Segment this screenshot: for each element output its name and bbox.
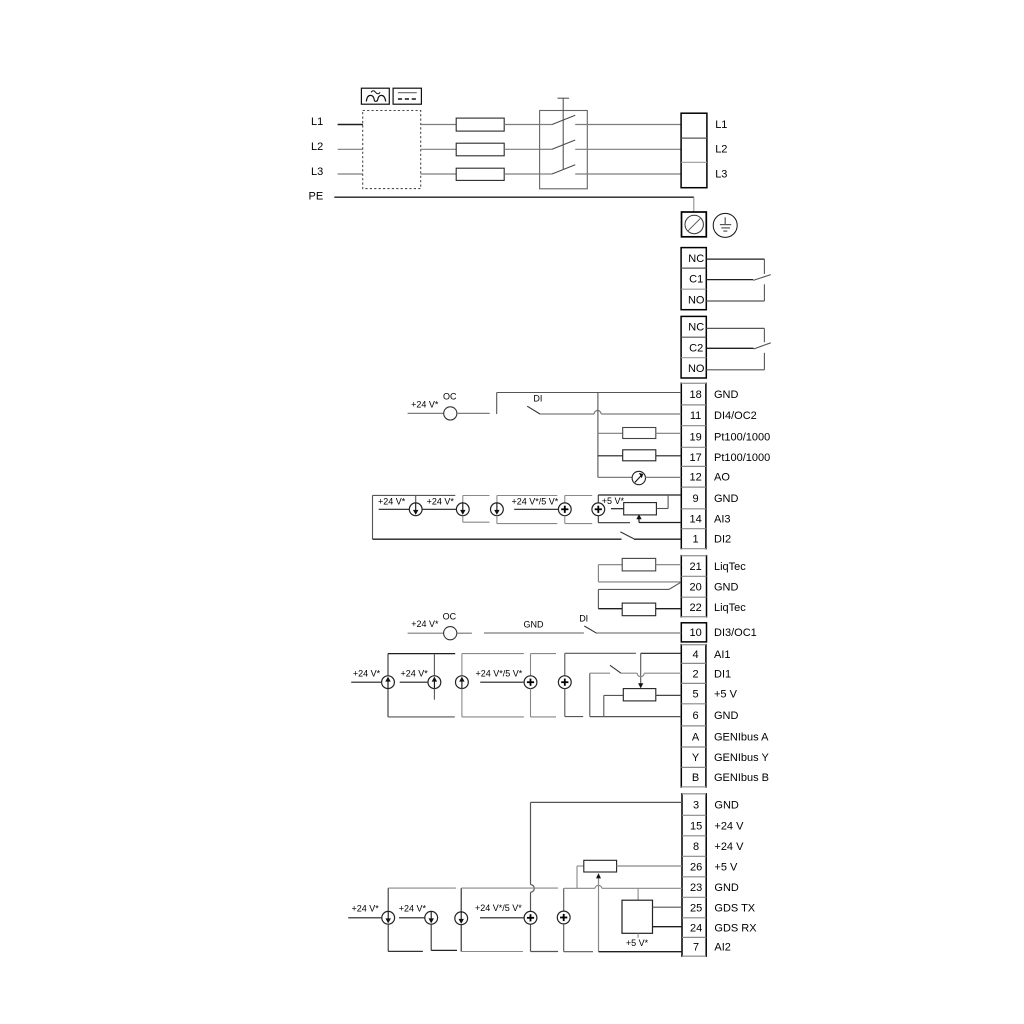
svg-text:3: 3 xyxy=(693,799,699,811)
svg-text:Pt100/1000: Pt100/1000 xyxy=(714,431,770,443)
svg-text:5: 5 xyxy=(693,689,699,701)
svg-text:+24 V: +24 V xyxy=(714,820,744,832)
svg-text:B: B xyxy=(692,772,699,784)
svg-text:+24 V: +24 V xyxy=(714,841,744,853)
svg-text:20: 20 xyxy=(689,582,701,594)
svg-text:+5 V: +5 V xyxy=(714,689,738,701)
svg-text:14: 14 xyxy=(689,514,701,526)
svg-text:10: 10 xyxy=(689,627,701,639)
svg-text:+24 V*: +24 V* xyxy=(401,668,429,678)
svg-text:GDS TX: GDS TX xyxy=(714,902,755,914)
svg-text:GND: GND xyxy=(524,620,545,630)
svg-text:6: 6 xyxy=(693,710,699,722)
svg-text:AI1: AI1 xyxy=(714,649,731,661)
svg-text:C1: C1 xyxy=(689,274,703,286)
svg-text:A: A xyxy=(692,731,700,743)
svg-text:+5 V: +5 V xyxy=(714,861,738,873)
svg-text:+24 V*: +24 V* xyxy=(353,668,381,678)
svg-text:+5 V*: +5 V* xyxy=(602,496,625,506)
svg-text:2: 2 xyxy=(693,668,699,680)
svg-text:LiqTec: LiqTec xyxy=(714,561,746,573)
svg-text:PE: PE xyxy=(309,191,324,203)
svg-text:+24 V*/5 V*: +24 V*/5 V* xyxy=(476,668,523,678)
svg-text:OC: OC xyxy=(443,612,457,622)
svg-text:+24 V*: +24 V* xyxy=(411,399,439,409)
svg-text:L3: L3 xyxy=(311,166,323,178)
svg-text:DI2: DI2 xyxy=(714,534,731,546)
svg-text:+24 V*: +24 V* xyxy=(427,497,455,507)
svg-text:26: 26 xyxy=(690,861,702,873)
svg-text:L1: L1 xyxy=(311,116,323,128)
svg-text:GDS RX: GDS RX xyxy=(714,923,757,935)
svg-text:22: 22 xyxy=(689,602,701,614)
svg-text:NC: NC xyxy=(688,322,704,334)
svg-text:21: 21 xyxy=(689,561,701,573)
svg-text:+24 V*: +24 V* xyxy=(399,904,427,914)
svg-text:GENIbus A: GENIbus A xyxy=(714,731,769,743)
svg-text:15: 15 xyxy=(690,820,702,832)
svg-text:DI4/OC2: DI4/OC2 xyxy=(714,410,757,422)
svg-text:1: 1 xyxy=(693,534,699,546)
svg-text:DI: DI xyxy=(579,613,588,623)
svg-text:LiqTec: LiqTec xyxy=(714,602,746,614)
svg-text:+5 V*: +5 V* xyxy=(626,938,649,948)
svg-text:AO: AO xyxy=(714,472,730,484)
svg-text:+24 V*: +24 V* xyxy=(352,904,380,914)
svg-text:L3: L3 xyxy=(715,169,727,181)
svg-text:L2: L2 xyxy=(311,141,323,153)
svg-text:DI: DI xyxy=(533,394,542,404)
svg-text:GENIbus Y: GENIbus Y xyxy=(714,752,769,764)
svg-text:GND: GND xyxy=(714,882,739,894)
svg-text:25: 25 xyxy=(690,902,702,914)
svg-text:GND: GND xyxy=(714,493,739,505)
svg-text:L1: L1 xyxy=(715,119,727,131)
svg-text:OC: OC xyxy=(443,391,457,401)
svg-text:AI3: AI3 xyxy=(714,514,731,526)
svg-text:+24 V*/5 V*: +24 V*/5 V* xyxy=(475,903,522,913)
svg-text:12: 12 xyxy=(689,472,701,484)
svg-text:18: 18 xyxy=(689,389,701,401)
svg-text:23: 23 xyxy=(690,882,702,894)
svg-text:NO: NO xyxy=(688,363,705,375)
svg-text:11: 11 xyxy=(690,410,701,422)
svg-text:GND: GND xyxy=(714,710,739,722)
svg-text:NC: NC xyxy=(688,253,704,265)
svg-text:C2: C2 xyxy=(689,342,703,354)
svg-text:+24 V*: +24 V* xyxy=(378,497,406,507)
svg-text:8: 8 xyxy=(693,841,699,853)
svg-text:9: 9 xyxy=(693,493,699,505)
svg-text:24: 24 xyxy=(690,923,702,935)
svg-text:4: 4 xyxy=(693,649,699,661)
svg-text:GENIbus B: GENIbus B xyxy=(714,772,769,784)
svg-text:GND: GND xyxy=(714,799,739,811)
svg-text:GND: GND xyxy=(714,582,739,594)
svg-text:19: 19 xyxy=(689,431,701,443)
svg-text:NO: NO xyxy=(688,294,705,306)
svg-text:Y: Y xyxy=(692,752,700,764)
svg-text:+24 V*: +24 V* xyxy=(411,619,439,629)
svg-text:AI2: AI2 xyxy=(714,942,731,954)
svg-text:17: 17 xyxy=(689,452,701,464)
svg-text:L2: L2 xyxy=(715,144,727,156)
svg-text:DI3/OC1: DI3/OC1 xyxy=(714,627,757,639)
svg-text:DI1: DI1 xyxy=(714,668,731,680)
svg-text:7: 7 xyxy=(693,942,699,954)
svg-text:+24 V*/5 V*: +24 V*/5 V* xyxy=(512,497,559,507)
svg-text:GND: GND xyxy=(714,389,739,401)
svg-text:Pt100/1000: Pt100/1000 xyxy=(714,452,770,464)
